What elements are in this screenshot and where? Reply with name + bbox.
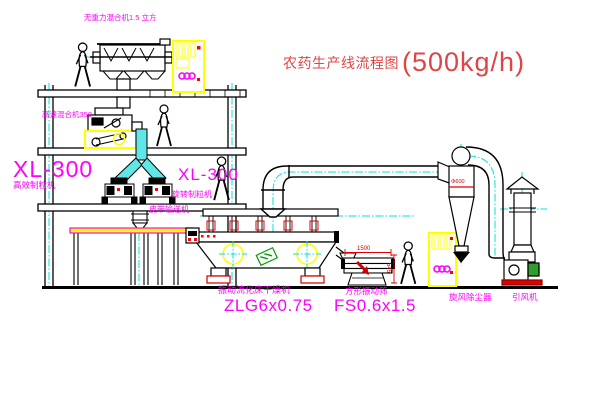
label-dryer-model: ZLG6x0.75 — [224, 297, 313, 314]
pesticide-line-flow-drawing: 农药生产线流程图 (500kg/h) 无重力混合机1.5 立方 高速混合机350… — [0, 0, 600, 403]
label-granulator-left: 高效制粒机 — [13, 181, 56, 190]
granulator-left — [102, 178, 137, 204]
person-roof — [75, 43, 90, 86]
induced-draft-fan — [502, 252, 542, 285]
label-fan: 引风机 — [512, 293, 538, 302]
control-cabinet-dryer — [429, 233, 456, 286]
label-speed-mixer: 高速混合机350 — [42, 111, 92, 119]
title-capacity: (500kg/h) — [402, 47, 525, 78]
dim-cyclone-diameter: Φ600 — [451, 180, 465, 186]
label-dryer: 振动流化床干燥机 — [218, 286, 290, 295]
control-cabinet-top — [173, 41, 204, 92]
fluid-bed-dryer — [186, 209, 352, 283]
title-text: 农药生产线流程图 — [283, 53, 399, 73]
gravity-free-mixer — [90, 39, 175, 108]
label-gravity-mixer: 无重力混合机1.5 立方 — [84, 14, 157, 22]
return-duct — [466, 147, 516, 266]
granulator-right — [140, 178, 175, 204]
drawing-title: 农药生产线流程图 (500kg/h) — [283, 47, 525, 78]
label-sieve: 方形振动筛 — [345, 287, 388, 296]
person-floor2 — [157, 105, 171, 146]
label-cyclone: 旋风除尘器 — [449, 293, 492, 302]
person-ground — [401, 242, 415, 284]
exhaust-stack — [507, 177, 538, 252]
label-granulator-right: 旋转制粒机 — [172, 191, 212, 199]
label-xl300-left: XL-300 — [13, 158, 93, 181]
label-sieve-model: FS0.6x1.5 — [334, 297, 416, 314]
dim-sieve-height: 545 — [385, 263, 391, 273]
label-xl300-right: XL-300 — [178, 166, 239, 183]
label-conveyor: 皮带输送机 — [149, 206, 189, 214]
discharge-hopper — [74, 211, 178, 285]
dim-sieve-width: 1500 — [357, 246, 370, 252]
high-speed-mixer — [85, 108, 142, 148]
